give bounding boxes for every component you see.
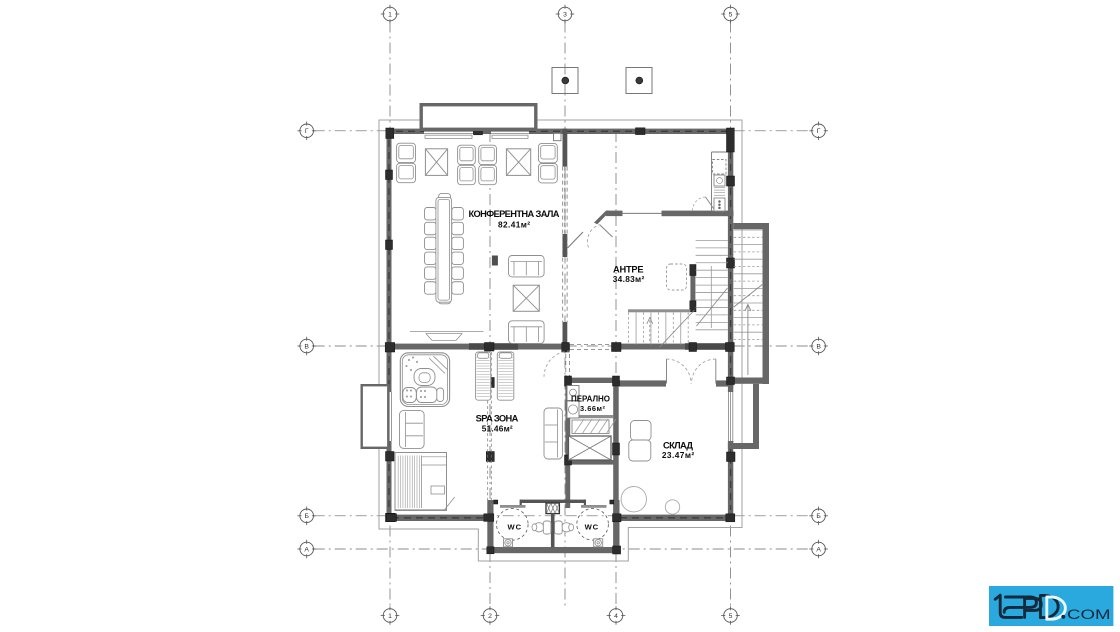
svg-text:Б: Б <box>816 513 821 520</box>
svg-text:WC: WC <box>508 522 522 531</box>
svg-text:1: 1 <box>388 613 392 620</box>
svg-text:5: 5 <box>729 11 733 18</box>
svg-text:5: 5 <box>729 613 733 620</box>
svg-text:23.47м²: 23.47м² <box>662 450 695 460</box>
svg-text:А: А <box>304 546 309 553</box>
svg-text:82.41м²: 82.41м² <box>498 219 530 229</box>
svg-text:3: 3 <box>563 11 567 18</box>
svg-text:А: А <box>816 546 821 553</box>
svg-text:34.83м²: 34.83м² <box>613 274 645 284</box>
svg-text:COM: COM <box>1067 607 1111 623</box>
svg-text:В: В <box>304 343 309 350</box>
svg-text:51.46м²: 51.46м² <box>482 424 513 434</box>
svg-text:Б: Б <box>304 513 309 520</box>
svg-text:В: В <box>816 343 821 350</box>
svg-text:SPA ЗОНА: SPA ЗОНА <box>476 413 519 423</box>
svg-text:3.66м²: 3.66м² <box>580 404 606 413</box>
svg-text:Г: Г <box>305 128 309 135</box>
svg-text:ПЕРАЛНО: ПЕРАЛНО <box>571 395 610 404</box>
svg-text:2: 2 <box>488 613 492 620</box>
svg-text:СКЛАД: СКЛАД <box>663 440 693 450</box>
svg-text:4: 4 <box>614 613 618 620</box>
svg-text:1: 1 <box>388 11 392 18</box>
svg-text:WC: WC <box>585 522 599 531</box>
svg-text:КОНФЕРЕНТНА ЗАЛА: КОНФЕРЕНТНА ЗАЛА <box>469 209 560 219</box>
svg-text:Г: Г <box>817 128 821 135</box>
